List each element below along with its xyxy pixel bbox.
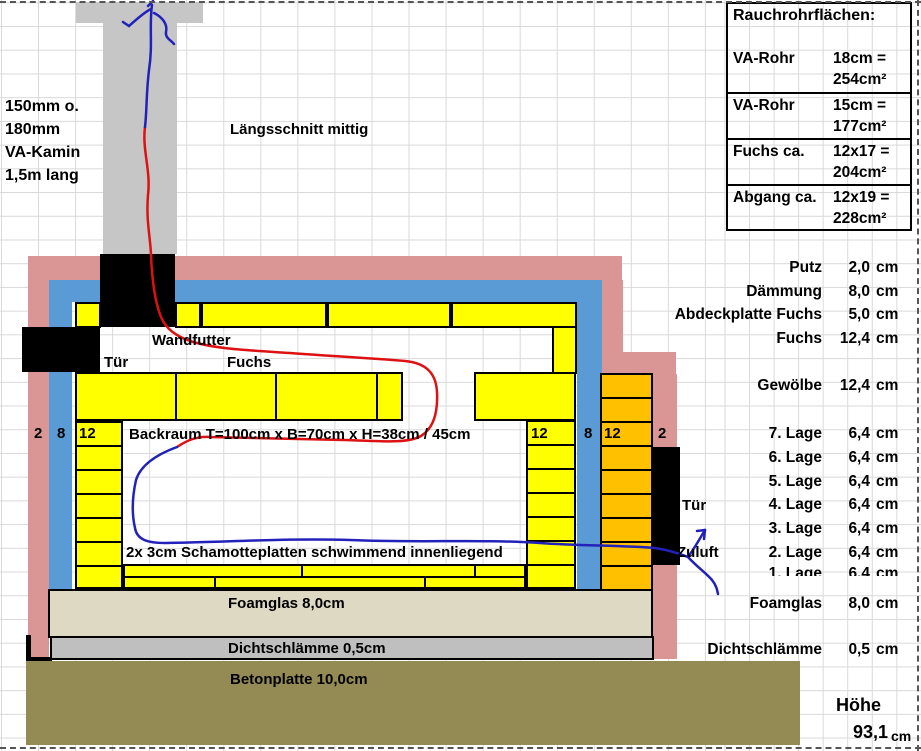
- rauchrohr-table-title: Rauchrohrflächen:: [733, 7, 875, 25]
- table-separator: [728, 184, 910, 186]
- layer-row-lage4: 4. Lage 6,4 cm: [0, 495, 921, 515]
- rauchrohr-row-label: VA-Rohr: [733, 50, 795, 68]
- layer-value: 5,0: [848, 305, 870, 325]
- rauchrohr-row-formula: 12x19 =: [833, 189, 889, 207]
- layer-label: 1. Lage: [769, 564, 822, 576]
- layer-unit: cm: [876, 329, 898, 349]
- rauchrohr-row-label: Abgang ca.: [733, 189, 817, 207]
- rauchrohr-row-result: 177cm²: [833, 118, 886, 136]
- layer-row-dichtschlaemme: Dichtschlämme 0,5 cm: [0, 640, 921, 660]
- layer-row-putz: Putz 2,0 cm: [0, 258, 921, 278]
- table-separator: [728, 138, 910, 140]
- layer-label: Gewölbe: [757, 376, 822, 396]
- betonplatte-layer: [26, 661, 800, 745]
- layer-label: 6. Lage: [769, 448, 822, 468]
- layer-unit: cm: [876, 305, 898, 325]
- layer-value: 6,4: [848, 424, 870, 444]
- layer-label: 4. Lage: [769, 495, 822, 515]
- layer-unit: cm: [876, 282, 898, 302]
- rauchrohr-row-formula: 12x17 =: [833, 143, 889, 161]
- layer-row-lage3: 3. Lage 6,4 cm: [0, 519, 921, 539]
- layer-unit: cm: [876, 472, 898, 492]
- hoehe-value: 93,1: [853, 721, 888, 743]
- layer-value: 6,4: [848, 495, 870, 515]
- layer-value: 6,4: [848, 472, 870, 492]
- layer-row-abdeckplatte: Abdeckplatte Fuchs 5,0 cm: [0, 305, 921, 325]
- chimney-note-line3: VA-Kamin: [5, 143, 80, 162]
- layer-value: 6,4: [848, 519, 870, 539]
- chimney-note-line4: 1,5m lang: [5, 166, 79, 185]
- layer-label: Dichtschlämme: [707, 640, 822, 660]
- layer-value: 2,0: [848, 258, 870, 278]
- betonplatte-label: Betonplatte 10,0cm: [230, 670, 368, 689]
- page-title: Längsschnitt mittig: [230, 120, 368, 139]
- layer-row-lage5: 5. Lage 6,4 cm: [0, 472, 921, 492]
- layer-unit: cm: [876, 376, 898, 396]
- chimney-cap: [76, 2, 203, 23]
- layer-row-lage1-clipped: 1. Lage 6,4 cm: [0, 564, 921, 576]
- hoehe-label: Höhe: [836, 694, 881, 716]
- chimney-shaft: [103, 22, 177, 254]
- tuer-left-label: Tür: [104, 353, 128, 372]
- layer-value: 12,4: [840, 376, 870, 396]
- layer-unit: cm: [876, 519, 898, 539]
- layer-label: 2. Lage: [769, 543, 822, 563]
- layer-label: Putz: [789, 258, 822, 278]
- layer-value: 6,4: [848, 448, 870, 468]
- rauchrohr-row-label: Fuchs ca.: [733, 143, 805, 161]
- rauchrohr-row-formula: 15cm =: [833, 97, 886, 115]
- layer-value: 0,5: [848, 640, 870, 660]
- rauchrohr-row-result: 204cm²: [833, 164, 886, 182]
- layer-label: 3. Lage: [769, 519, 822, 539]
- layer-label: Fuchs: [776, 329, 822, 349]
- layer-value: 6,4: [848, 564, 870, 576]
- layer-row-gewoelbe: Gewölbe 12,4 cm: [0, 376, 921, 396]
- layer-unit: cm: [876, 424, 898, 444]
- layer-unit: cm: [876, 495, 898, 515]
- layer-label: Foamglas: [750, 594, 822, 614]
- layer-label: Abdeckplatte Fuchs: [675, 305, 822, 325]
- layer-value: 6,4: [848, 543, 870, 563]
- rauchrohr-row-result: 254cm²: [833, 71, 886, 89]
- fuchs-label: Fuchs: [227, 353, 271, 372]
- layer-unit: cm: [876, 594, 898, 614]
- layer-unit: cm: [876, 543, 898, 563]
- chimney-group: [76, 2, 203, 254]
- layer-row-lage6: 6. Lage 6,4 cm: [0, 448, 921, 468]
- chimney-note-line1: 150mm o.: [5, 97, 79, 116]
- layer-label: 5. Lage: [769, 472, 822, 492]
- layer-label: 7. Lage: [769, 424, 822, 444]
- layer-unit: cm: [876, 640, 898, 660]
- rauchrohr-row-result: 228cm²: [833, 210, 886, 228]
- hoehe-unit: cm: [891, 725, 911, 747]
- layer-unit: cm: [876, 448, 898, 468]
- layer-unit: cm: [876, 564, 898, 576]
- chimney-note-line2: 180mm: [5, 120, 60, 139]
- layer-row-lage7: 7. Lage 6,4 cm: [0, 424, 921, 444]
- layer-value: 8,0: [848, 282, 870, 302]
- layer-unit: cm: [876, 258, 898, 278]
- layer-label: Dämmung: [746, 282, 822, 302]
- layer-value: 8,0: [848, 594, 870, 614]
- layer-value: 12,4: [840, 329, 870, 349]
- spreadsheet-canvas: 150mm o. 180mm VA-Kamin 1,5m lang Längss…: [0, 0, 921, 751]
- layer-row-foamglas: Foamglas 8,0 cm: [0, 594, 921, 614]
- table-separator: [728, 92, 910, 94]
- layer-row-lage2: 2. Lage 6,4 cm: [0, 543, 921, 563]
- layer-row-daemmung: Dämmung 8,0 cm: [0, 282, 921, 302]
- layer-row-fuchs: Fuchs 12,4 cm: [0, 329, 921, 349]
- rauchrohr-row-label: VA-Rohr: [733, 97, 795, 115]
- rauchrohr-row-formula: 18cm =: [833, 50, 886, 68]
- rauchrohr-table: Rauchrohrflächen: VA-Rohr 18cm = 254cm² …: [726, 2, 912, 231]
